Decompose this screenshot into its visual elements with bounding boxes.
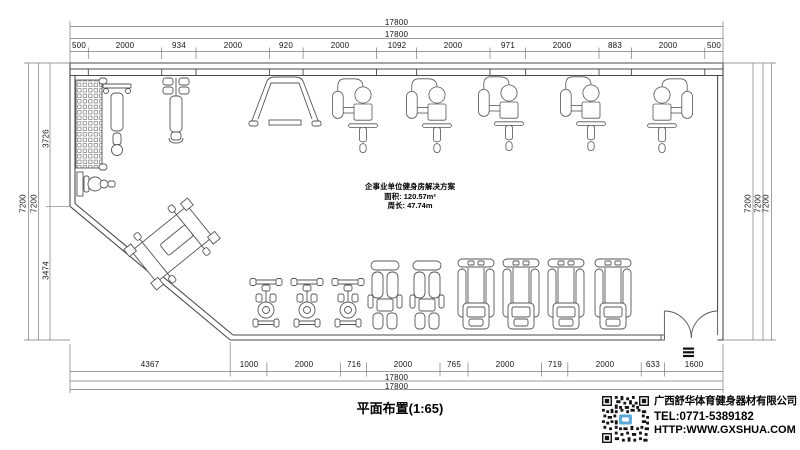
dim-label: 1600 (674, 360, 714, 369)
spin-bike-icon (291, 279, 323, 328)
exercise-bike-icon (410, 261, 444, 329)
company-tel: TEL:0771-5389182 (654, 410, 800, 424)
dim-label: 17800 (70, 382, 723, 391)
plan-perimeter: 周长: 47.74m (320, 201, 500, 211)
dim-label: 7200 (744, 184, 753, 224)
plan-caption: 平面布置(1:65) (300, 398, 500, 417)
dim-label: 17800 (70, 18, 723, 27)
dim-label: 1000 (229, 360, 269, 369)
company-name: 广西舒华体育健身器材有限公司 (654, 395, 800, 408)
dim-label: 934 (159, 41, 199, 50)
strength-machine-icon (560, 77, 605, 151)
dim-label: 2000 (284, 360, 324, 369)
dim-label: 2000 (383, 360, 423, 369)
plan-title: 企事业单位健身房解决方案 (320, 182, 500, 192)
dim-label: 4367 (130, 360, 170, 369)
dim-label: 2000 (320, 41, 360, 50)
plan-area: 面积: 120.57m² (320, 192, 500, 202)
dim-label: 719 (535, 360, 575, 369)
spin-bike-icon (332, 279, 364, 328)
strength-machine-icon (332, 79, 377, 153)
smith-machine-icon (121, 194, 224, 294)
weight-bench-icon (103, 84, 131, 156)
spin-bike-icon (250, 279, 282, 328)
dim-label: 971 (488, 41, 528, 50)
floor-plan-canvas: 17800 17800 500 2000 934 2000 920 2000 1… (0, 0, 800, 450)
wall-mounted-machine-icon (77, 172, 115, 196)
dim-label: 500 (59, 41, 99, 50)
plan-annotation: 企事业单位健身房解决方案 面积: 120.57m² 周长: 47.74m (320, 182, 500, 211)
company-info: 广西舒华体育健身器材有限公司 TEL:0771-5389182 HTTP:WWW… (654, 395, 800, 437)
dim-label: 2000 (648, 41, 688, 50)
dim-label: 17800 (70, 30, 723, 39)
dim-label: 3474 (41, 251, 50, 291)
strength-machine-icon (406, 79, 451, 153)
dim-label: 2000 (105, 41, 145, 50)
exercise-bike-icon (368, 261, 402, 329)
dim-label: 17800 (70, 373, 723, 382)
dim-label: 920 (266, 41, 306, 50)
dim-label: 2000 (213, 41, 253, 50)
dim-label: 500 (694, 41, 734, 50)
dim-label: 2000 (433, 41, 473, 50)
adjustable-bench-icon (163, 78, 189, 143)
dim-label: 2000 (542, 41, 582, 50)
dim-label: 633 (633, 360, 673, 369)
treadmill-icon (503, 259, 539, 329)
squat-rack-icon (249, 77, 321, 126)
lat-pulldown-machine-icon (648, 79, 693, 153)
treadmill-icon (548, 259, 584, 329)
dim-label: 2000 (585, 360, 625, 369)
dim-label: 883 (595, 41, 635, 50)
treadmill-icon (595, 259, 631, 329)
dim-label: 1092 (377, 41, 417, 50)
strength-machine-icon (478, 77, 523, 151)
dim-label: 3726 (41, 119, 50, 159)
dim-label: 7200 (19, 184, 28, 224)
company-website: HTTP:WWW.GXSHUA.COM (654, 424, 800, 437)
dim-label: 7200 (30, 184, 39, 224)
entrance-mat-icon (683, 348, 694, 358)
dim-label: 765 (434, 360, 474, 369)
dim-label: 2000 (485, 360, 525, 369)
qr-code (602, 395, 649, 444)
treadmill-icon (458, 259, 494, 329)
double-door-icon (664, 311, 717, 338)
dim-label: 716 (334, 360, 374, 369)
dumbbell-rack-icon (76, 78, 107, 170)
dim-label: 7200 (762, 184, 771, 224)
